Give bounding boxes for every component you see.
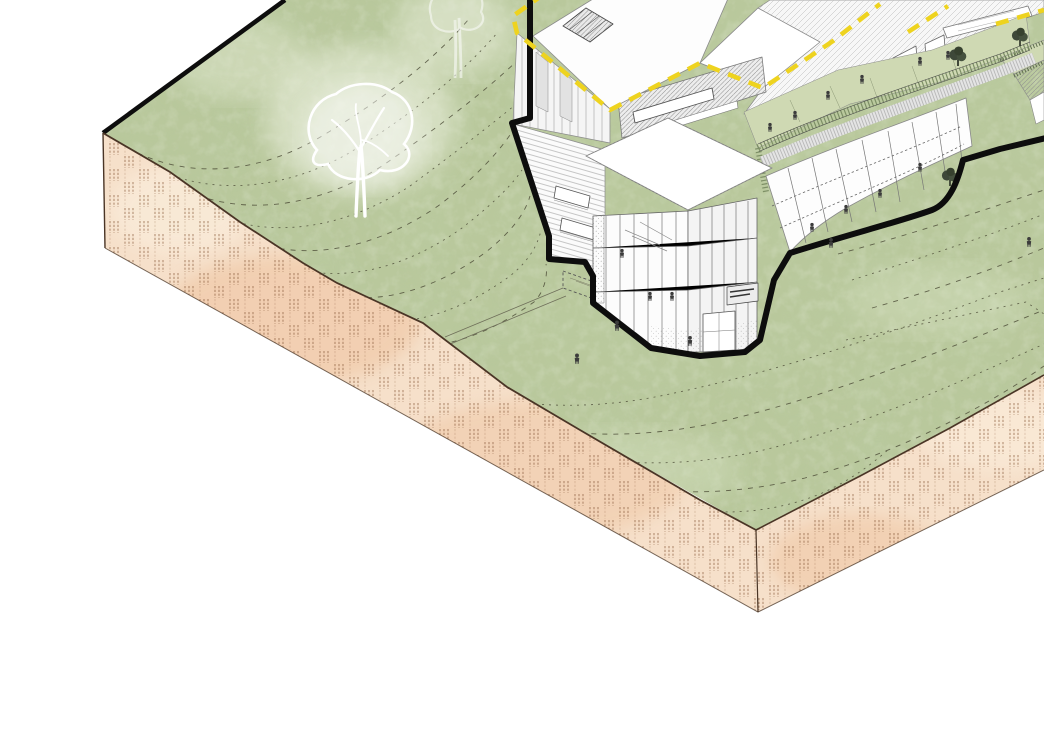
drawing-canvas xyxy=(0,0,1044,747)
building-signage xyxy=(727,283,758,305)
site-axonometric-illustration xyxy=(0,0,1044,747)
